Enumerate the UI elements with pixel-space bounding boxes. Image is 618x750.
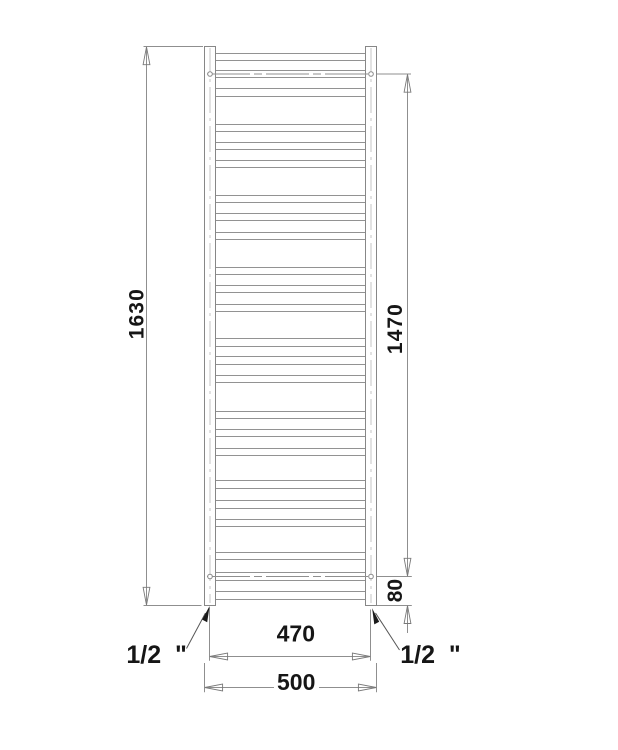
svg-text:500: 500: [277, 669, 315, 695]
svg-text:470: 470: [277, 621, 315, 647]
svg-text:80: 80: [384, 579, 407, 602]
svg-text:1/2 ": 1/2 ": [126, 641, 187, 669]
svg-text:1470: 1470: [384, 303, 407, 354]
svg-text:1/2 ": 1/2 ": [400, 641, 461, 669]
svg-text:1630: 1630: [125, 288, 148, 339]
